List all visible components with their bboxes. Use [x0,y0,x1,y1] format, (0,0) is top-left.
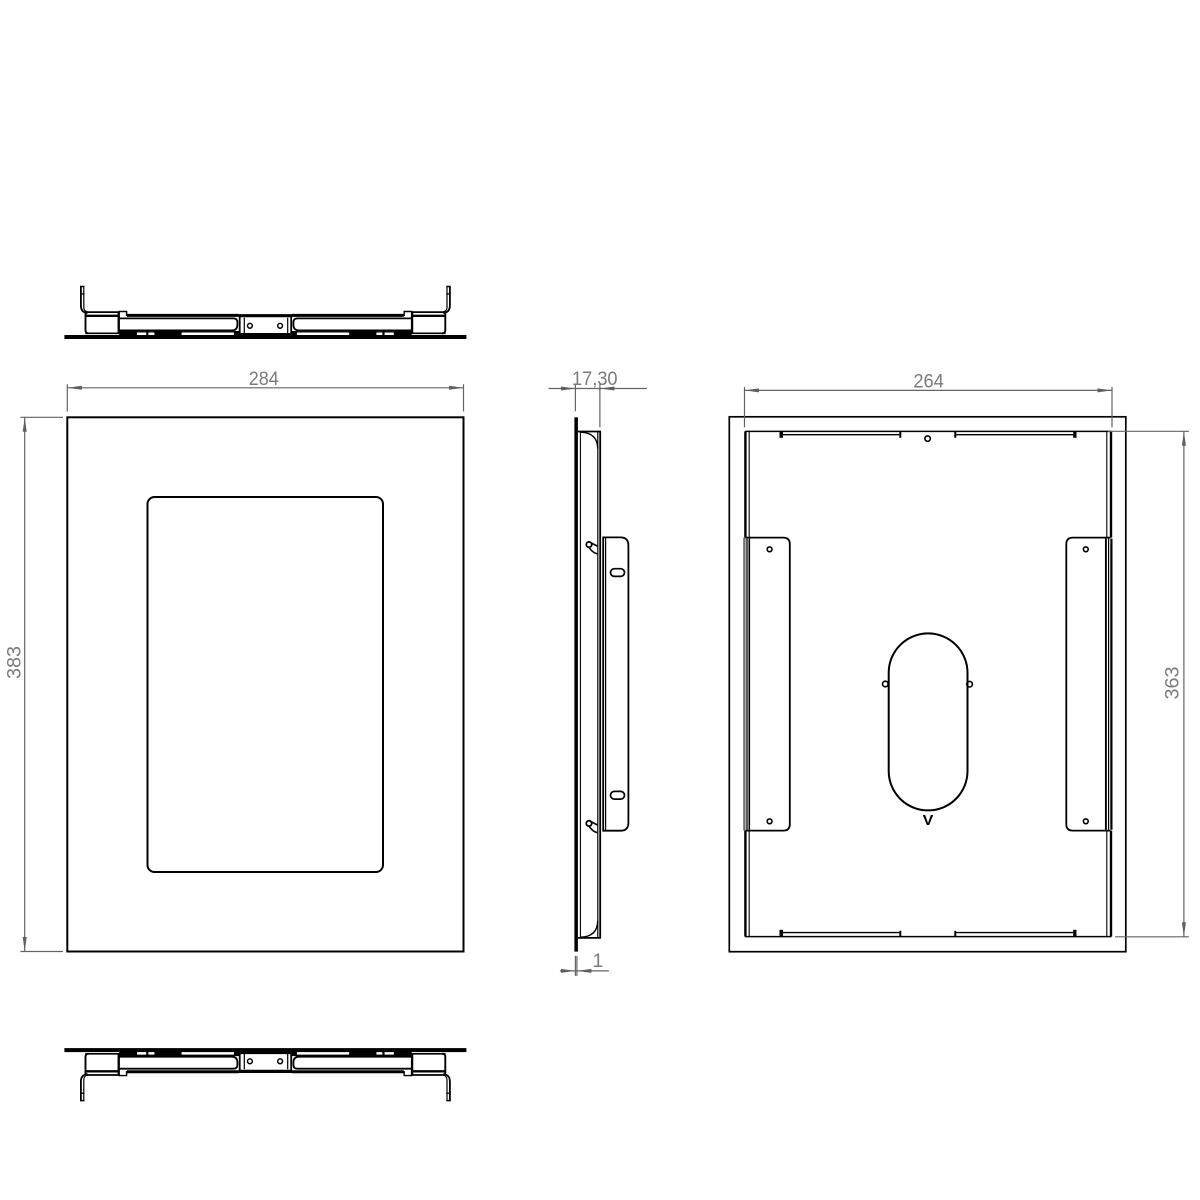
svg-text:383: 383 [3,646,25,679]
svg-text:1: 1 [592,950,603,972]
svg-text:17,30: 17,30 [572,368,618,390]
svg-text:V: V [923,813,934,829]
svg-text:264: 264 [913,371,944,393]
svg-text:284: 284 [249,368,279,390]
svg-text:363: 363 [1162,667,1184,700]
